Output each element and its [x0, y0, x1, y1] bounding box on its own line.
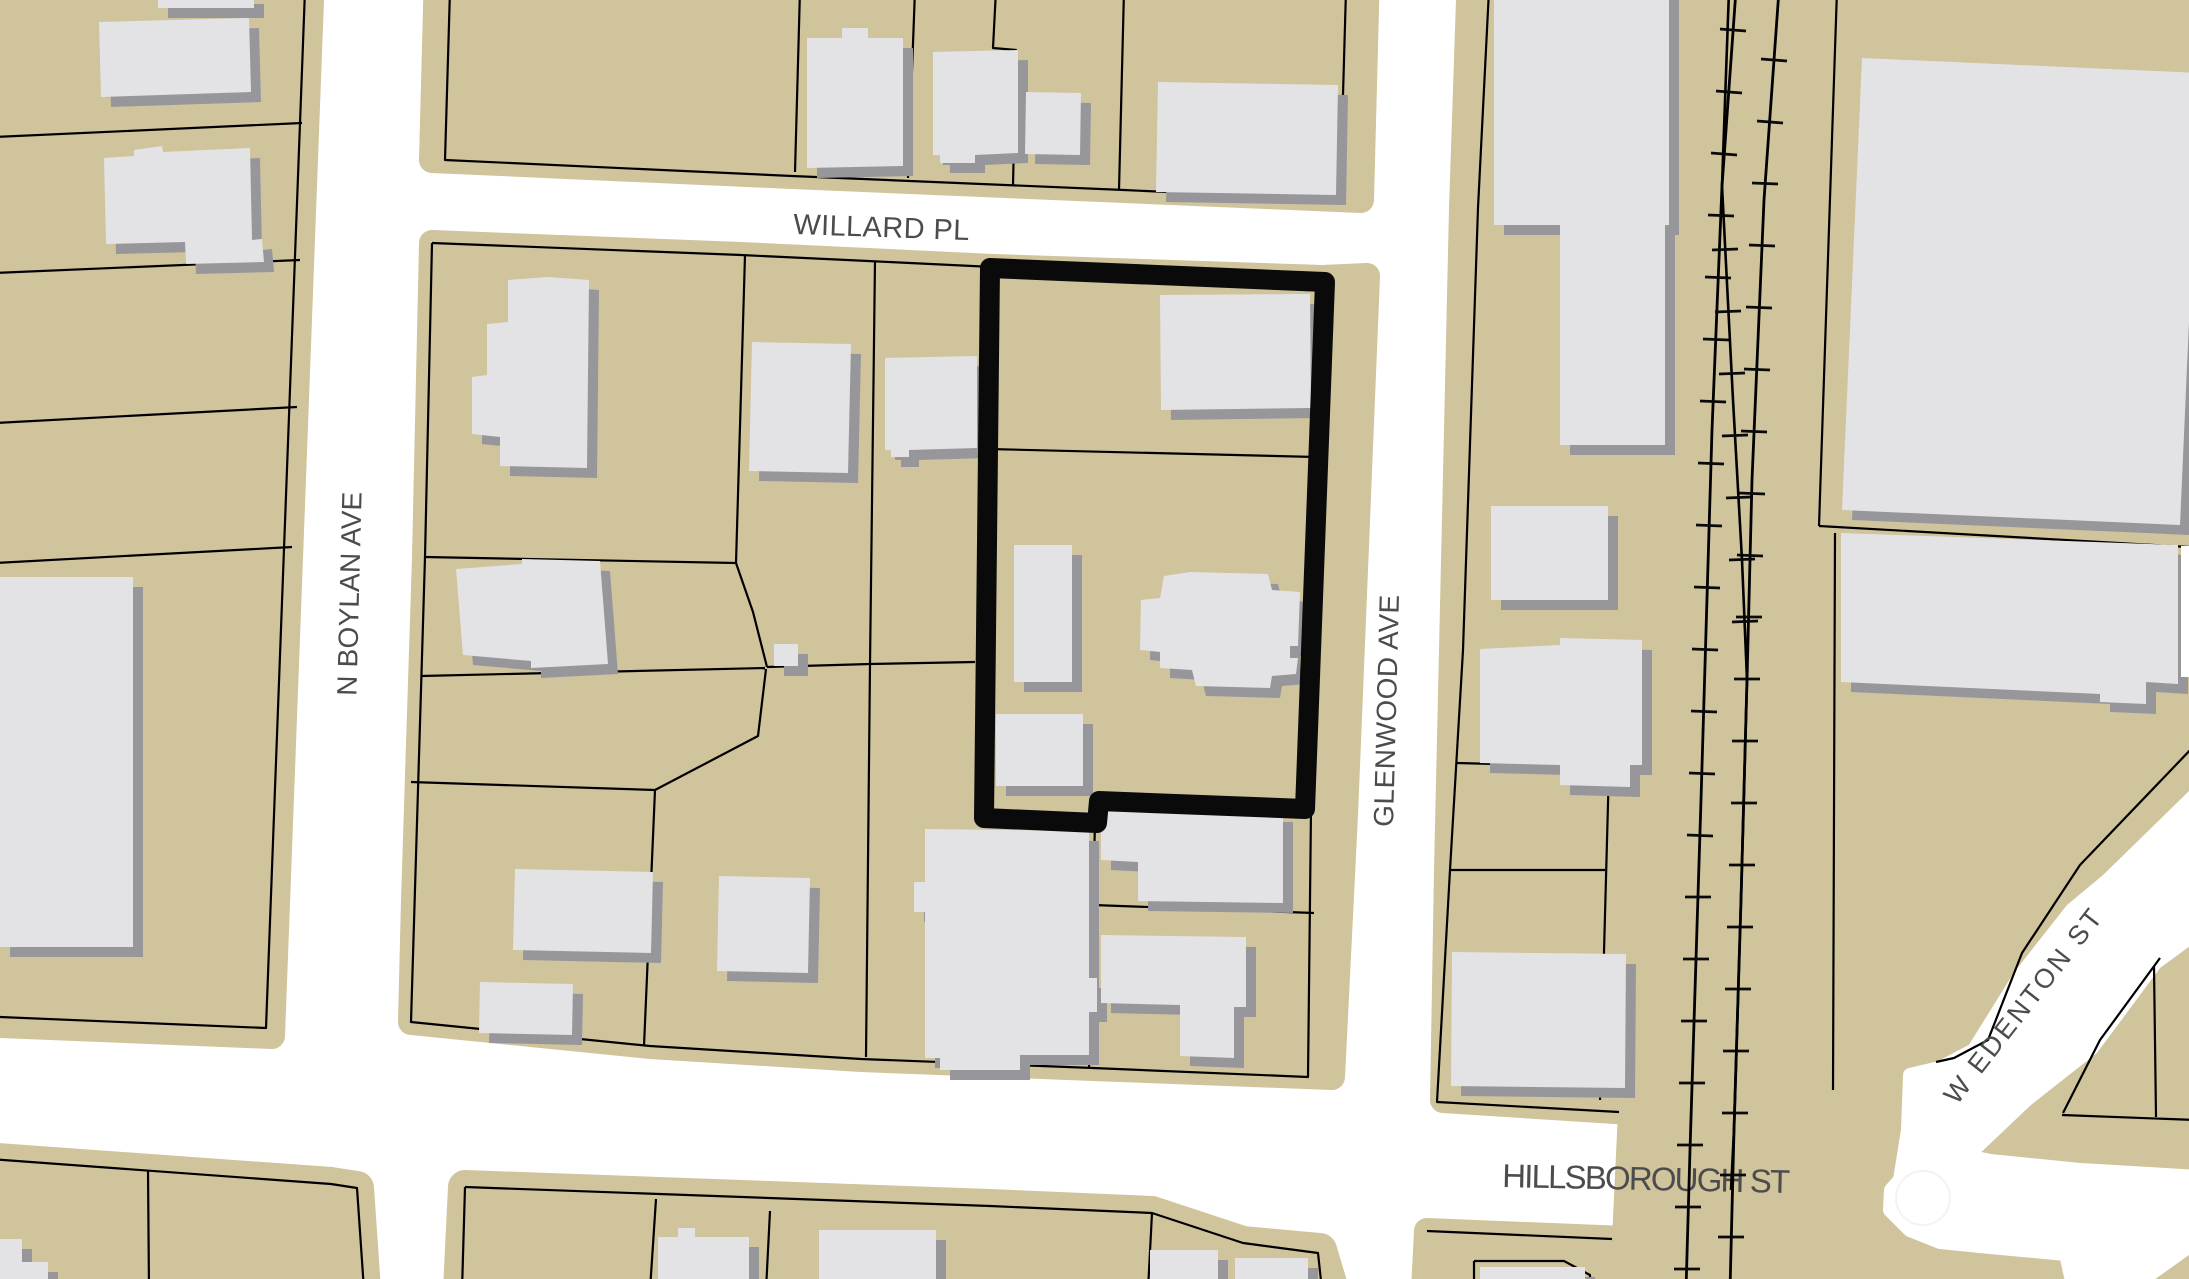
svg-text:N BOYLAN AVE: N BOYLAN AVE — [331, 491, 367, 696]
svg-text:GLENWOOD AVE: GLENWOOD AVE — [1368, 594, 1405, 827]
svg-text:HILLSBOROUGH ST: HILLSBOROUGH ST — [1502, 1157, 1791, 1200]
svg-text:WILLARD PL: WILLARD PL — [793, 209, 970, 247]
